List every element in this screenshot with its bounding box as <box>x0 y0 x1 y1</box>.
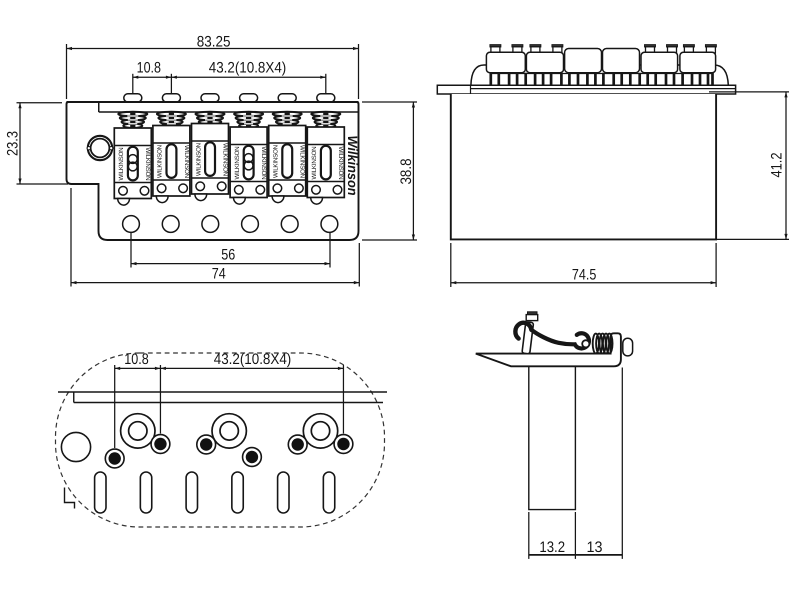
svg-text:74.5: 74.5 <box>572 267 596 284</box>
svg-text:WILKINSON: WILKINSON <box>260 147 267 180</box>
svg-text:WILKINSON: WILKINSON <box>195 143 202 176</box>
svg-text:43.2(10.8X4): 43.2(10.8X4) <box>209 59 287 76</box>
svg-text:38.8: 38.8 <box>398 159 415 185</box>
svg-text:13: 13 <box>587 539 603 556</box>
svg-text:WILKINSON: WILKINSON <box>337 147 344 180</box>
svg-text:10.8: 10.8 <box>137 59 161 76</box>
svg-text:WILKINSON: WILKINSON <box>144 148 151 181</box>
svg-text:23.3: 23.3 <box>5 131 22 156</box>
svg-text:WILKINSON: WILKINSON <box>299 145 306 178</box>
svg-text:WILKINSON: WILKINSON <box>118 148 125 181</box>
svg-text:83.25: 83.25 <box>197 33 231 50</box>
svg-text:WILKINSON: WILKINSON <box>183 145 190 178</box>
svg-text:WILKINSON: WILKINSON <box>221 143 228 176</box>
svg-text:41.2: 41.2 <box>769 153 786 178</box>
svg-text:10.8: 10.8 <box>124 351 148 368</box>
svg-text:Wilkinson: Wilkinson <box>345 136 360 196</box>
svg-text:43.2(10.8X4): 43.2(10.8X4) <box>214 351 292 368</box>
svg-text:WILKINSON: WILKINSON <box>311 147 318 180</box>
svg-text:13.2: 13.2 <box>539 539 565 556</box>
svg-text:56: 56 <box>221 246 235 263</box>
svg-text:74: 74 <box>212 266 226 283</box>
svg-text:WILKINSON: WILKINSON <box>234 147 241 180</box>
svg-text:WILKINSON: WILKINSON <box>157 145 164 178</box>
svg-text:WILKINSON: WILKINSON <box>273 145 280 178</box>
